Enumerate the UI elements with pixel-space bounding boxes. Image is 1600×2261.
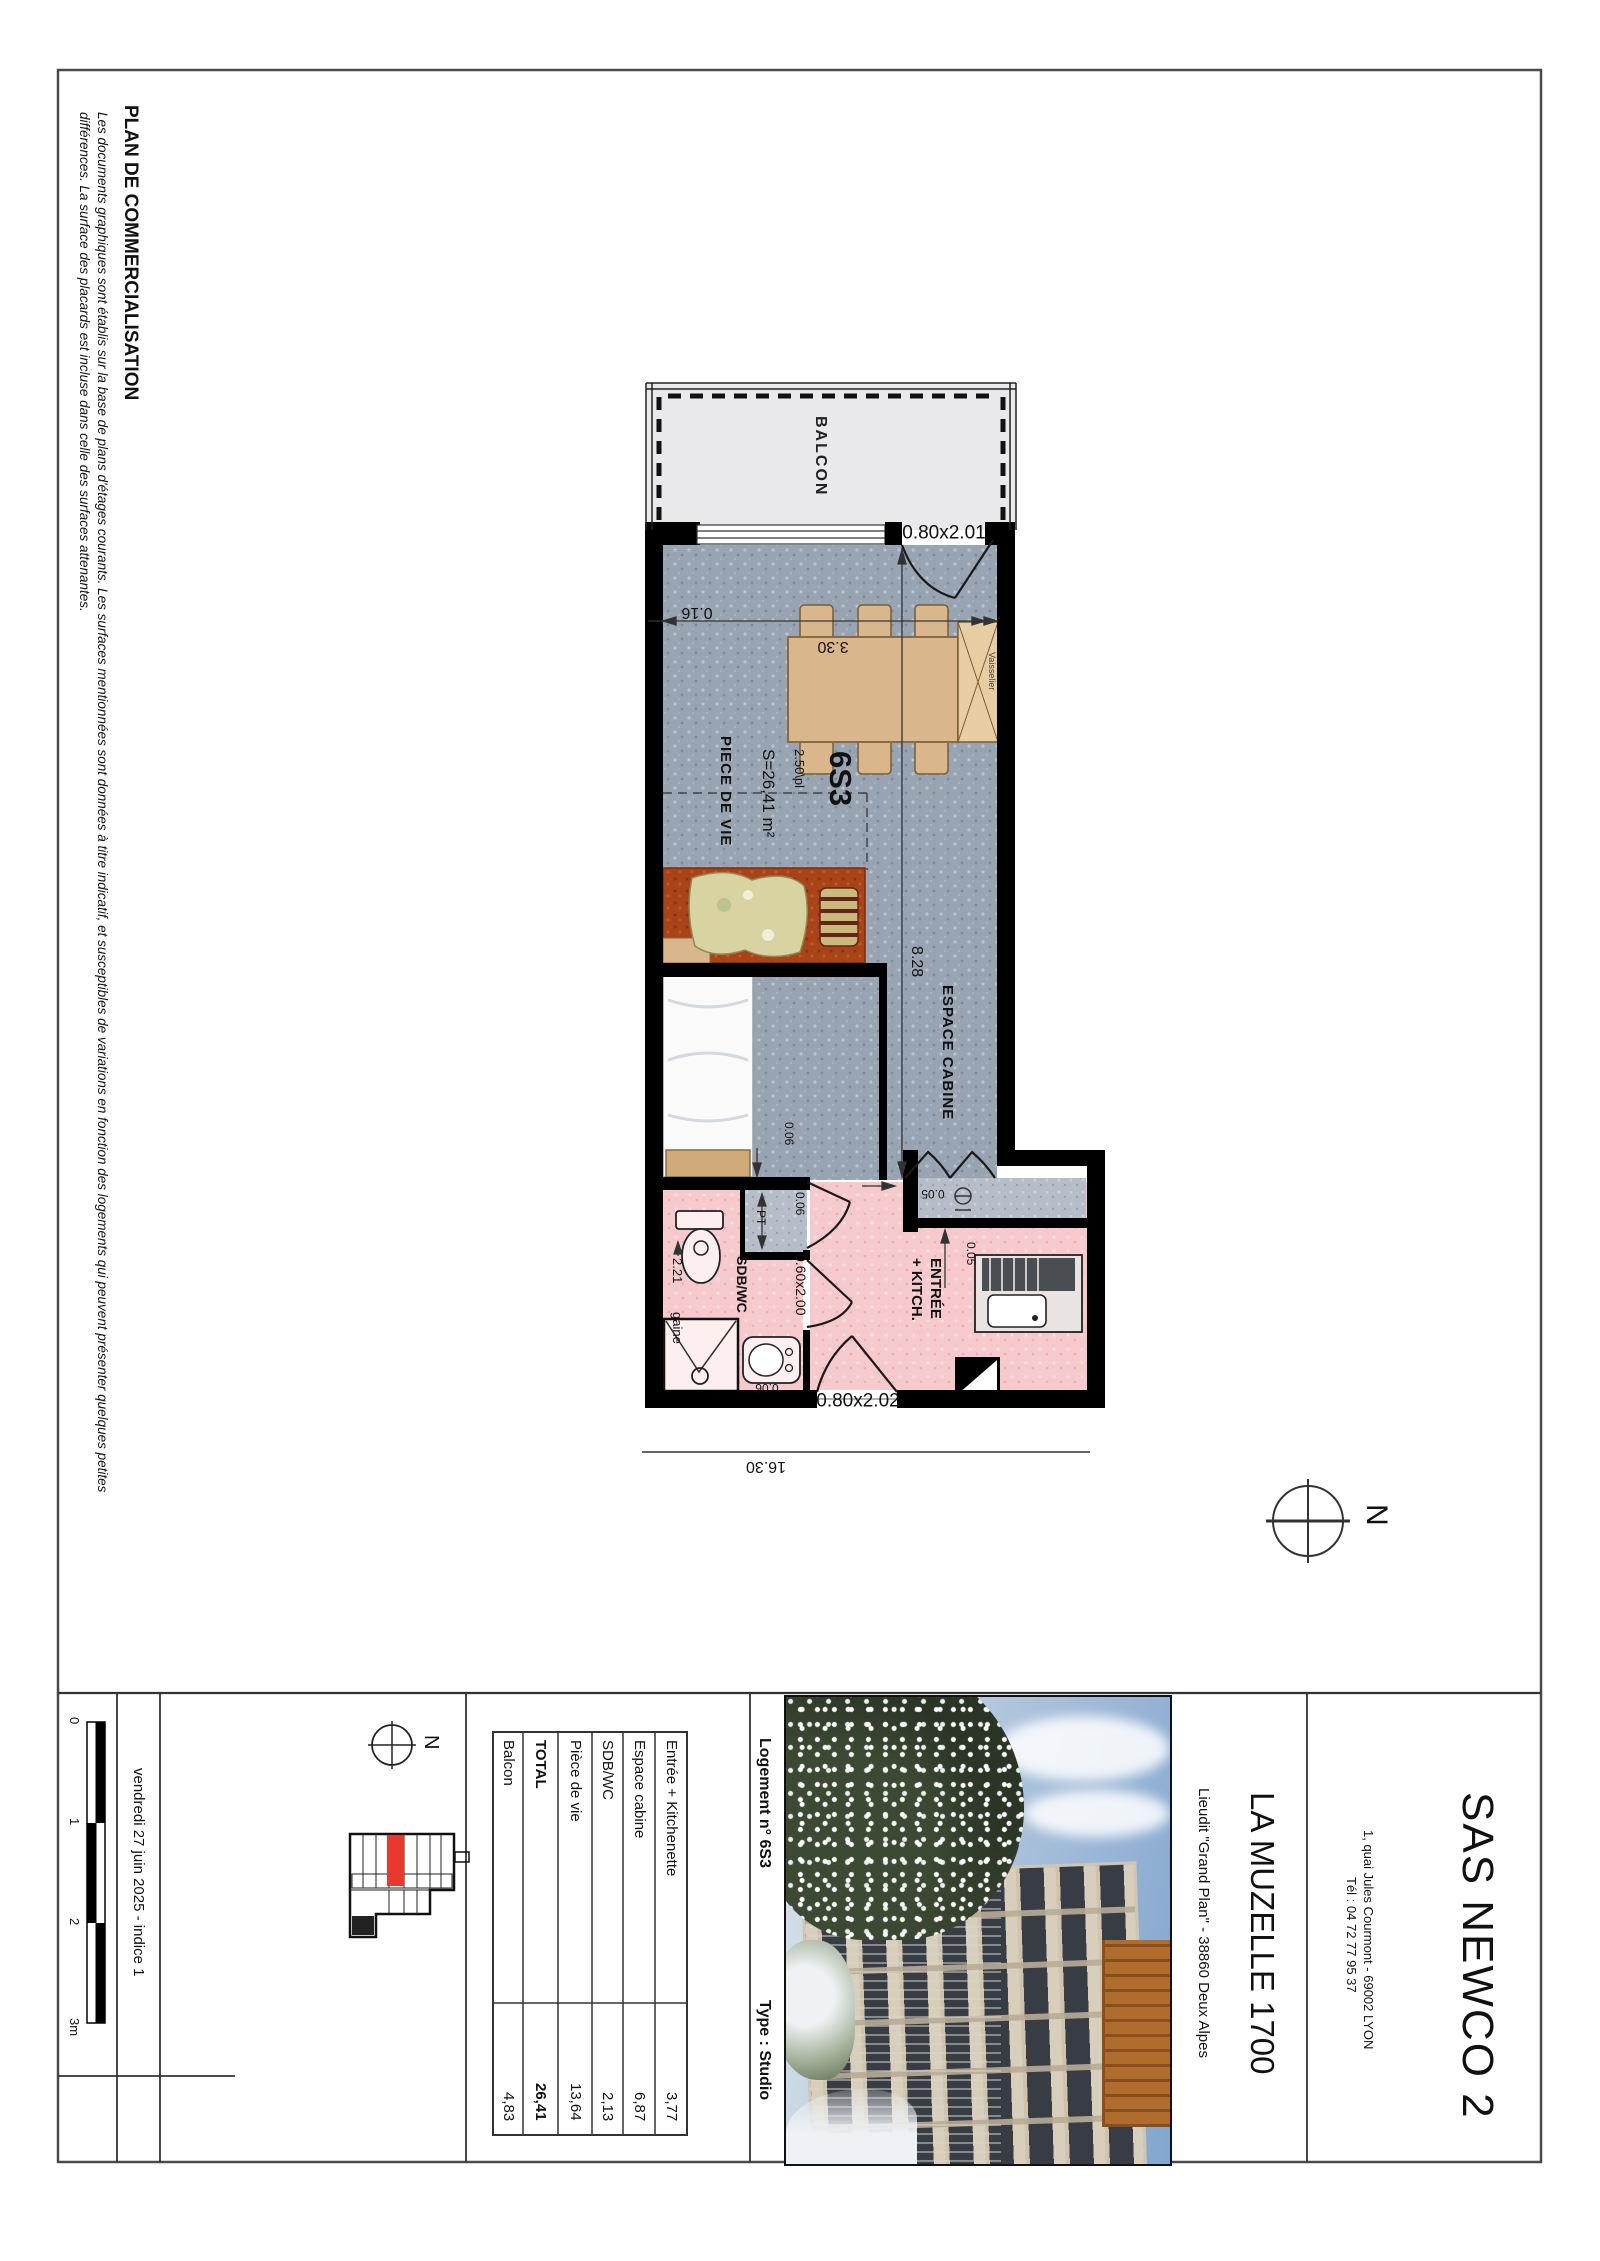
sofa-bolster	[820, 888, 858, 946]
unit-surface: S=26,41 m²	[760, 749, 777, 837]
area-table-grid	[493, 1732, 687, 2135]
scale-tick-0: 0	[68, 1717, 81, 1724]
disclaimer-line2: différences. La surface des placards est…	[78, 112, 92, 612]
page-title: PLAN DE COMMERCIALISATION	[121, 105, 140, 400]
area-row-value: 13,64	[568, 2083, 583, 2121]
dim-kitchen-side: 0.05	[965, 1242, 977, 1265]
scale-tick-2: 2	[68, 1918, 81, 1925]
dim-bath-width: 2.21	[671, 1258, 684, 1283]
room-label-living: PIECE DE VIE	[718, 736, 733, 846]
toilet-bowl	[682, 1229, 720, 1283]
label-dresser: Vaisselier	[987, 652, 996, 690]
company-address: 1, quai Jules Courmont - 69002 LYON	[1362, 1830, 1375, 2049]
area-row-label: TOTAL	[533, 1740, 548, 1789]
dim-length: 8.28	[908, 946, 924, 977]
window	[697, 525, 885, 544]
unit-header: Logement n° 6S3	[756, 1738, 772, 1868]
north-arrow-small-icon	[368, 1721, 416, 1769]
north-label-small: N	[421, 1735, 441, 1749]
dim-width: 3.30	[817, 638, 848, 654]
company-name: SAS NEWCO 2	[1455, 1792, 1499, 2120]
disclaimer-line1: Les documents graphiques sont établis su…	[96, 112, 110, 1492]
area-row-label: SDB/WC	[600, 1740, 615, 1800]
dim-bath-door: 0.60x2.00	[794, 1254, 808, 1316]
area-row-label: Espace cabine	[632, 1740, 647, 1838]
area-row-value: 4,83	[501, 2092, 516, 2121]
dim-gap-niche: 0.06	[794, 1192, 806, 1215]
highlighted-unit	[387, 1835, 404, 1886]
date-label: vendredi 27 juin 2025 - indice 1	[131, 1768, 146, 1976]
kitchen-sink	[988, 1295, 1046, 1327]
north-arrow-icon	[1266, 1479, 1350, 1563]
unit-number: 6S3	[825, 751, 856, 806]
dim-wall: 0.16	[681, 604, 712, 620]
sheet: PLAN DE COMMERCIALISATION Les documents …	[0, 0, 1600, 2261]
dim-entry-door: 0.80x2.02	[816, 1392, 899, 1411]
scale-tick-1: 1	[68, 1818, 81, 1825]
chair	[858, 740, 891, 774]
area-row-label: Pièce de vie	[568, 1740, 583, 1822]
dim-total: 16.30	[746, 1458, 786, 1474]
area-row-value: 26,41	[533, 2083, 548, 2121]
north-label: N	[1361, 1504, 1391, 1526]
dim-gap-shower: 0.06	[755, 1382, 778, 1394]
area-row-label: Balcon	[501, 1740, 516, 1786]
room-label-balcony: BALCON	[812, 416, 828, 496]
dim-duct: PT	[755, 1210, 767, 1225]
area-row-value: 3,77	[664, 2092, 679, 2121]
dim-gap-bed: 0.06	[783, 1122, 795, 1145]
toilet-tank	[676, 1211, 723, 1229]
scale-tick-3: 3m	[68, 2018, 81, 2036]
room-label-bathroom: SDB/WC	[735, 1256, 749, 1313]
chair	[858, 605, 891, 639]
area-row-value: 2,13	[600, 2092, 615, 2121]
chair	[800, 605, 833, 639]
area-row-label: Entrée + Kitchenette	[664, 1740, 679, 1876]
scale-bar	[87, 1722, 105, 2023]
sofa-pillow	[689, 872, 807, 956]
room-label-cabin: ESPACE CABINE	[940, 985, 955, 1120]
washbasin	[749, 1344, 783, 1376]
bed-footboard	[666, 1150, 750, 1177]
room-label-entry-1: ENTRÉE	[928, 1258, 943, 1319]
dim-kitchen-top: 0.05	[921, 1188, 944, 1200]
residence-location: Lieudit "Grand Plan" - 38860 Deux Alpes	[1196, 1788, 1211, 2058]
room-label-entry-2: + KITCH.	[909, 1258, 924, 1321]
ceiling-height: 2.50\pl	[793, 749, 806, 788]
dim-balcony-door: 0.80x2.01	[902, 524, 985, 543]
site-photo	[784, 1695, 1172, 2166]
area-row-value: 6,87	[632, 2092, 647, 2121]
balcony-floor	[646, 383, 1016, 530]
chair	[915, 740, 948, 774]
type-header: Type : Studio	[756, 2000, 772, 2100]
company-phone: Tél : 04 72 77 95 37	[1345, 1877, 1358, 1993]
photo-timber-structure	[1105, 1940, 1170, 2127]
hob	[982, 1258, 1075, 1291]
residence-name: LA MUZELLE 1700	[1246, 1792, 1279, 2075]
dining-table	[788, 637, 958, 742]
unit-thumbnail	[350, 1834, 469, 1937]
label-duct: gaine	[671, 1312, 684, 1344]
chair	[915, 605, 948, 639]
